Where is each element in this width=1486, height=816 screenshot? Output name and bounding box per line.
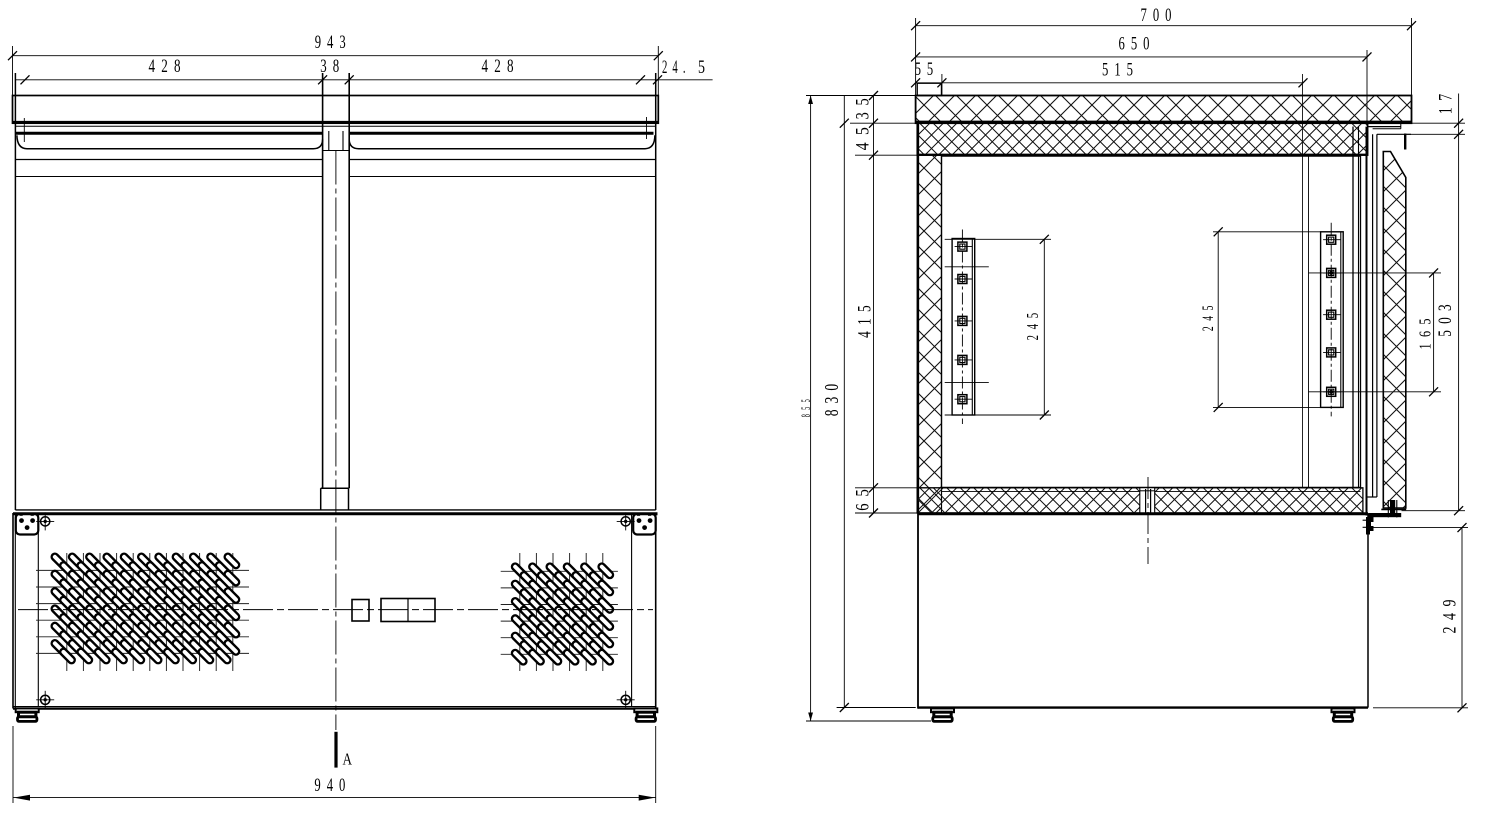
svg-text:940: 940 [314, 775, 351, 796]
svg-text:700: 700 [1141, 5, 1178, 26]
svg-text:855: 855 [798, 395, 813, 417]
svg-text:515: 515 [1102, 60, 1139, 81]
svg-text:45: 45 [853, 120, 874, 150]
svg-text:65: 65 [853, 482, 874, 510]
svg-text:415: 415 [855, 299, 876, 338]
svg-text:428: 428 [149, 56, 187, 77]
svg-text:245: 245 [1023, 307, 1042, 340]
svg-text:55: 55 [915, 59, 939, 80]
svg-text:24.: 24. [662, 57, 691, 78]
svg-text:A: A [342, 750, 359, 769]
svg-text:503: 503 [1435, 298, 1456, 337]
svg-text:650: 650 [1119, 34, 1156, 55]
svg-text:943: 943 [315, 32, 352, 53]
svg-text:245: 245 [1200, 300, 1217, 331]
svg-text:5: 5 [698, 57, 712, 78]
svg-text:249: 249 [1440, 593, 1461, 634]
svg-text:17: 17 [1436, 87, 1457, 114]
svg-text:830: 830 [821, 378, 843, 417]
svg-text:428: 428 [482, 56, 520, 77]
svg-text:165: 165 [1416, 312, 1435, 349]
svg-text:38: 38 [320, 56, 345, 77]
svg-text:35: 35 [853, 92, 874, 120]
